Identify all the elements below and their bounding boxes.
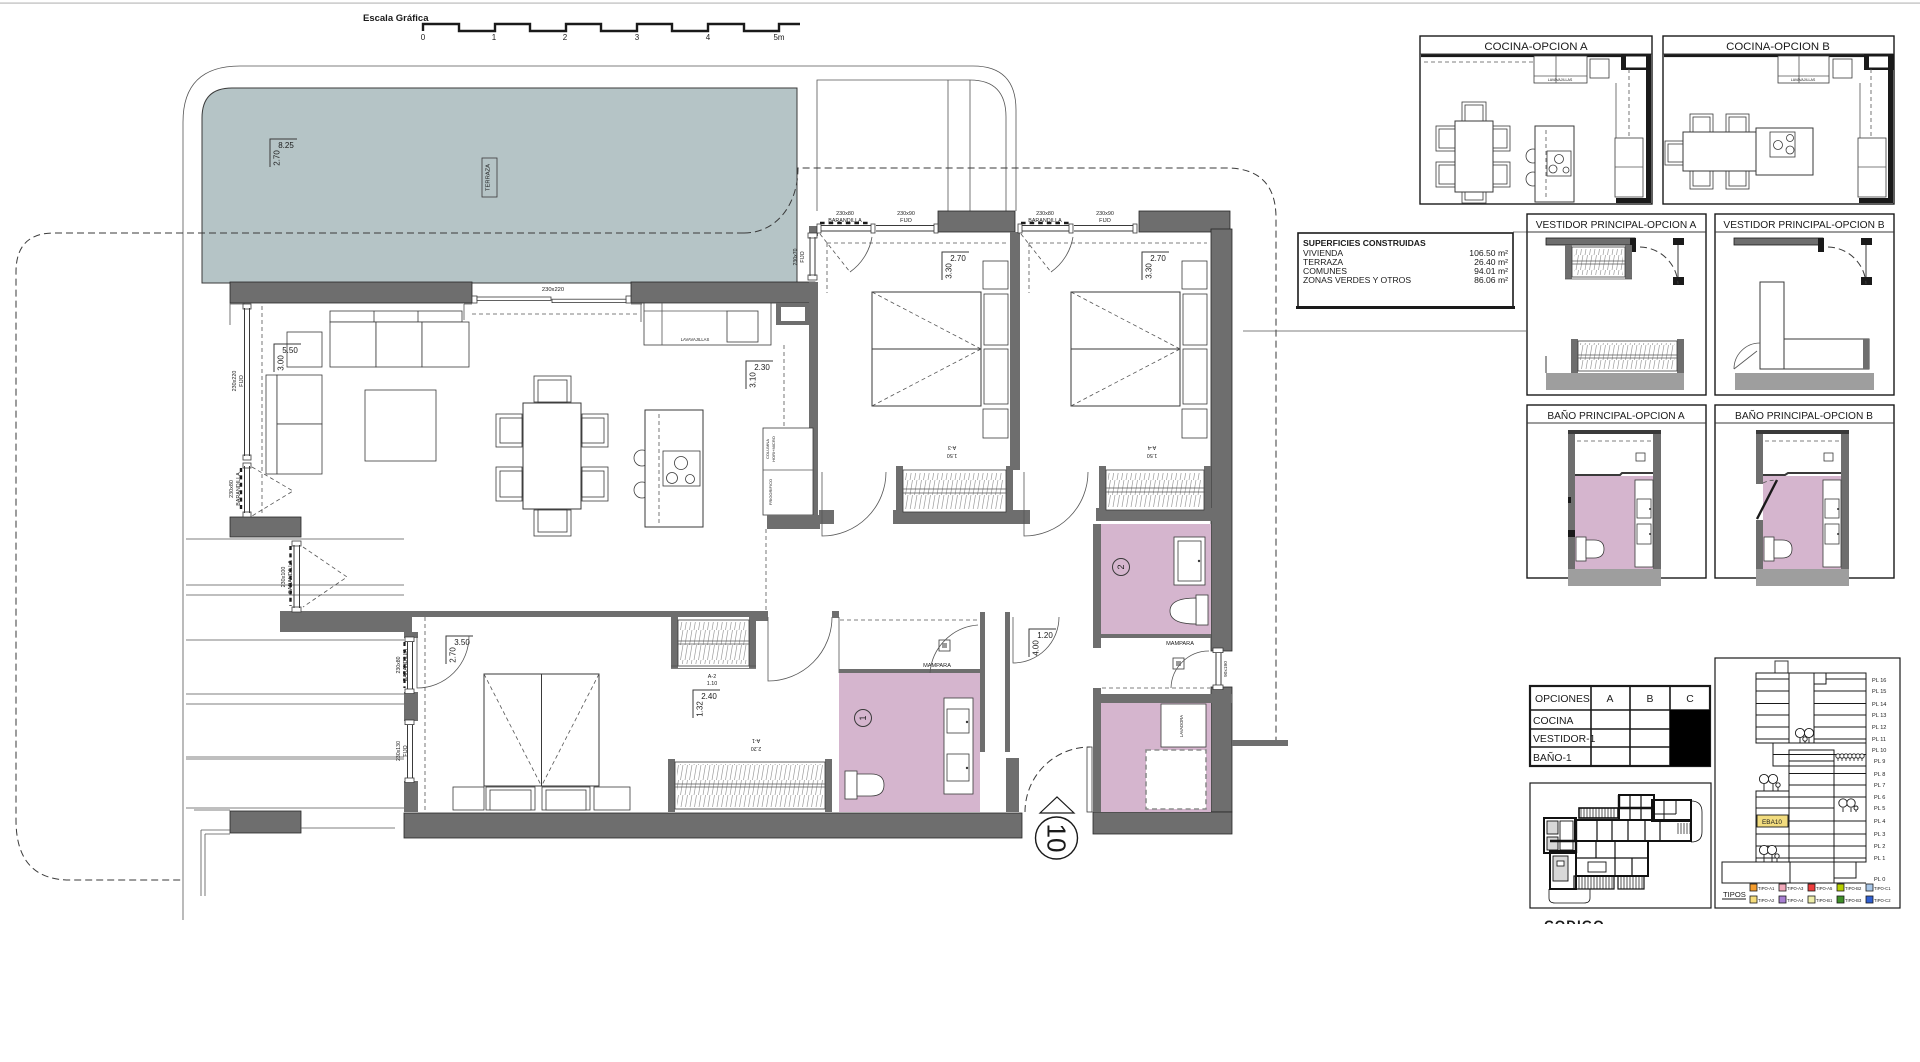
svg-text:2: 2 xyxy=(563,33,568,42)
svg-text:LAVAVAJILLAS: LAVAVAJILLAS xyxy=(1791,78,1816,82)
svg-text:1: 1 xyxy=(858,715,868,720)
svg-text:TIPO-B1: TIPO-B1 xyxy=(1816,898,1833,903)
svg-text:3.00: 3.00 xyxy=(277,355,286,371)
svg-text:SUPERFICIES CONSTRUIDAS: SUPERFICIES CONSTRUIDAS xyxy=(1303,238,1426,248)
svg-text:2.70: 2.70 xyxy=(273,150,282,166)
svg-text:BARANDILLA: BARANDILLA xyxy=(236,472,242,506)
svg-text:BAÑO-1: BAÑO-1 xyxy=(1533,751,1572,764)
svg-text:8.25: 8.25 xyxy=(278,141,294,150)
svg-text:LAVADORA: LAVADORA xyxy=(1179,715,1184,737)
svg-text:4: 4 xyxy=(706,33,711,42)
svg-text:5.50: 5.50 xyxy=(282,346,298,355)
svg-text:230x220: 230x220 xyxy=(542,287,564,293)
svg-text:90x190: 90x190 xyxy=(1223,661,1229,677)
svg-text:4.00: 4.00 xyxy=(1032,640,1041,656)
svg-text:10: 10 xyxy=(1042,824,1072,853)
svg-text:PL 14: PL 14 xyxy=(1872,702,1886,708)
svg-text:1.32: 1.32 xyxy=(696,701,705,717)
svg-text:TIPO-A3: TIPO-A3 xyxy=(1787,886,1804,891)
svg-text:PL 0: PL 0 xyxy=(1874,877,1885,883)
svg-text:COCINA-OPCION A: COCINA-OPCION A xyxy=(1484,41,1588,53)
svg-text:BARANDILLA: BARANDILLA xyxy=(1028,218,1062,224)
svg-text:TIPO-B2: TIPO-B2 xyxy=(1845,886,1862,891)
svg-text:230x220: 230x220 xyxy=(232,371,238,392)
svg-text:A-3: A-3 xyxy=(948,444,956,450)
svg-text:230x130: 230x130 xyxy=(396,741,402,761)
svg-text:PL 4: PL 4 xyxy=(1874,819,1885,825)
svg-text:A-1: A-1 xyxy=(752,737,760,743)
svg-text:FIJO: FIJO xyxy=(800,251,806,262)
svg-text:PL 9: PL 9 xyxy=(1874,759,1885,765)
svg-text:FIJO: FIJO xyxy=(1099,218,1111,224)
svg-text:EBA10: EBA10 xyxy=(1762,819,1782,826)
svg-text:230x90: 230x90 xyxy=(897,211,915,217)
svg-text:TIPO-A4: TIPO-A4 xyxy=(1787,898,1804,903)
svg-text:PL 6: PL 6 xyxy=(1874,795,1885,801)
svg-text:2.70: 2.70 xyxy=(950,254,966,263)
svg-text:PL 7: PL 7 xyxy=(1874,783,1885,789)
svg-text:A: A xyxy=(1607,694,1614,705)
svg-text:1.50: 1.50 xyxy=(947,452,958,458)
svg-text:230x80: 230x80 xyxy=(396,656,402,673)
svg-text:2.70: 2.70 xyxy=(1150,254,1166,263)
svg-text:230x70: 230x70 xyxy=(793,248,799,265)
svg-text:COLUMNA: COLUMNA xyxy=(765,439,770,459)
svg-text:TIPO-A5: TIPO-A5 xyxy=(1816,886,1833,891)
svg-text:86.06 m²: 86.06 m² xyxy=(1474,275,1508,285)
svg-text:2.20: 2.20 xyxy=(751,745,762,751)
svg-text:230x100: 230x100 xyxy=(281,567,287,588)
svg-text:0: 0 xyxy=(421,33,426,42)
svg-text:230x80: 230x80 xyxy=(836,211,854,217)
svg-text:COCINA: COCINA xyxy=(1533,716,1573,727)
svg-text:3.30: 3.30 xyxy=(1145,263,1154,279)
svg-text:2.30: 2.30 xyxy=(754,363,770,372)
svg-text:PL 5: PL 5 xyxy=(1874,806,1885,812)
svg-text:FRIGORIFICO: FRIGORIFICO xyxy=(768,479,773,505)
svg-text:A-4: A-4 xyxy=(1148,444,1156,450)
svg-text:3.30: 3.30 xyxy=(945,263,954,279)
svg-text:OPCIONES: OPCIONES xyxy=(1535,694,1590,705)
svg-text:VESTIDOR PRINCIPAL-OPCION B: VESTIDOR PRINCIPAL-OPCION B xyxy=(1723,220,1884,231)
svg-text:ZONAS VERDES Y OTROS: ZONAS VERDES Y OTROS xyxy=(1303,275,1411,285)
svg-text:230x80: 230x80 xyxy=(1036,211,1054,217)
svg-text:PL 16: PL 16 xyxy=(1872,678,1886,684)
svg-text:TIPO-A2: TIPO-A2 xyxy=(1758,898,1775,903)
svg-text:BARANDILLA: BARANDILLA xyxy=(403,648,409,681)
svg-text:TIPO-B3: TIPO-B3 xyxy=(1845,898,1862,903)
svg-text:3: 3 xyxy=(635,33,640,42)
svg-text:BAÑO PRINCIPAL-OPCION B: BAÑO PRINCIPAL-OPCION B xyxy=(1735,409,1873,422)
svg-text:3.10: 3.10 xyxy=(749,372,758,388)
svg-text:1.20: 1.20 xyxy=(1037,631,1053,640)
svg-text:PL 8: PL 8 xyxy=(1874,772,1885,778)
svg-text:C: C xyxy=(1686,694,1694,705)
svg-text:2.70: 2.70 xyxy=(449,647,458,663)
svg-text:BARANDILLA: BARANDILLA xyxy=(828,218,862,224)
svg-text:TIPO-A1: TIPO-A1 xyxy=(1758,886,1775,891)
svg-text:PL 13: PL 13 xyxy=(1872,713,1886,719)
svg-text:PL 10: PL 10 xyxy=(1872,748,1886,754)
svg-text:2: 2 xyxy=(1116,564,1126,569)
svg-text:PL 15: PL 15 xyxy=(1872,689,1886,695)
svg-text:PL 12: PL 12 xyxy=(1872,725,1886,731)
svg-text:5m: 5m xyxy=(773,33,784,42)
svg-text:MAMPARA: MAMPARA xyxy=(923,663,951,669)
svg-text:COCINA-OPCION B: COCINA-OPCION B xyxy=(1726,41,1830,53)
svg-text:PL 11: PL 11 xyxy=(1872,737,1886,743)
svg-text:Escala Gráfica: Escala Gráfica xyxy=(363,13,429,24)
svg-text:TIPO-C1: TIPO-C1 xyxy=(1874,886,1891,891)
svg-text:230x80: 230x80 xyxy=(229,480,235,498)
svg-text:HORI+MICRO: HORI+MICRO xyxy=(771,436,776,462)
svg-text:1.10: 1.10 xyxy=(707,681,718,687)
svg-text:1.50: 1.50 xyxy=(1147,452,1158,458)
svg-text:LAVAVAJILLAS: LAVAVAJILLAS xyxy=(1548,78,1573,82)
svg-text:LAVAVAJILLAS: LAVAVAJILLAS xyxy=(681,337,710,342)
svg-text:PL 1: PL 1 xyxy=(1874,856,1885,862)
svg-text:FIJO: FIJO xyxy=(239,375,245,387)
svg-text:PL 2: PL 2 xyxy=(1874,844,1885,850)
svg-text:VESTIDOR PRINCIPAL-OPCION A: VESTIDOR PRINCIPAL-OPCION A xyxy=(1536,220,1697,231)
svg-text:TIPOS: TIPOS xyxy=(1723,890,1746,899)
svg-text:FIJO: FIJO xyxy=(403,745,409,756)
svg-text:TIPO-C2: TIPO-C2 xyxy=(1874,898,1891,903)
svg-text:2.40: 2.40 xyxy=(701,692,717,701)
svg-text:BARANDILLA: BARANDILLA xyxy=(288,560,294,594)
svg-text:A-2: A-2 xyxy=(708,674,716,680)
svg-text:VESTIDOR-1: VESTIDOR-1 xyxy=(1533,734,1596,745)
svg-text:B: B xyxy=(1647,694,1654,705)
svg-text:MAMPARA: MAMPARA xyxy=(1166,641,1194,647)
svg-text:PL 3: PL 3 xyxy=(1874,832,1885,838)
svg-text:FIJO: FIJO xyxy=(900,218,912,224)
svg-text:TERRAZA: TERRAZA xyxy=(486,164,492,191)
svg-text:1: 1 xyxy=(492,33,497,42)
svg-text:BAÑO PRINCIPAL-OPCION A: BAÑO PRINCIPAL-OPCION A xyxy=(1547,409,1685,422)
svg-text:230x90: 230x90 xyxy=(1096,211,1114,217)
